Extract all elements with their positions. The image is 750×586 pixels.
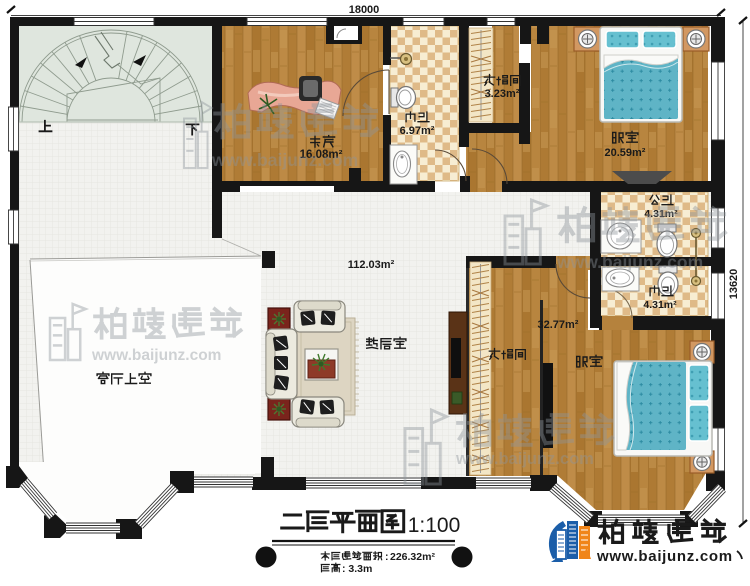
svg-text:18000: 18000 — [349, 4, 380, 16]
svg-text:32.77m²: 32.77m² — [538, 319, 579, 331]
svg-text:www.baijunz.com: www.baijunz.com — [556, 252, 703, 272]
svg-text:www.baijunz.com: www.baijunz.com — [91, 347, 221, 364]
svg-text:www.baijunz.com: www.baijunz.com — [211, 150, 358, 170]
svg-text:226.32m²: 226.32m² — [390, 551, 435, 563]
svg-text:112.03m²: 112.03m² — [348, 259, 395, 271]
svg-text:www.baijunz.com: www.baijunz.com — [596, 548, 733, 565]
svg-text:www.baijunz.com: www.baijunz.com — [455, 450, 594, 468]
svg-text:13620: 13620 — [728, 269, 740, 300]
svg-text:4.31m²: 4.31m² — [643, 299, 677, 311]
svg-text:: 3.3m: : 3.3m — [342, 563, 372, 575]
svg-text::: : — [385, 551, 389, 563]
svg-text:6.97m²: 6.97m² — [400, 125, 435, 137]
svg-text:3.23m²: 3.23m² — [485, 88, 520, 100]
svg-text:1:100: 1:100 — [408, 514, 461, 537]
svg-text:20.59m²: 20.59m² — [605, 147, 646, 159]
